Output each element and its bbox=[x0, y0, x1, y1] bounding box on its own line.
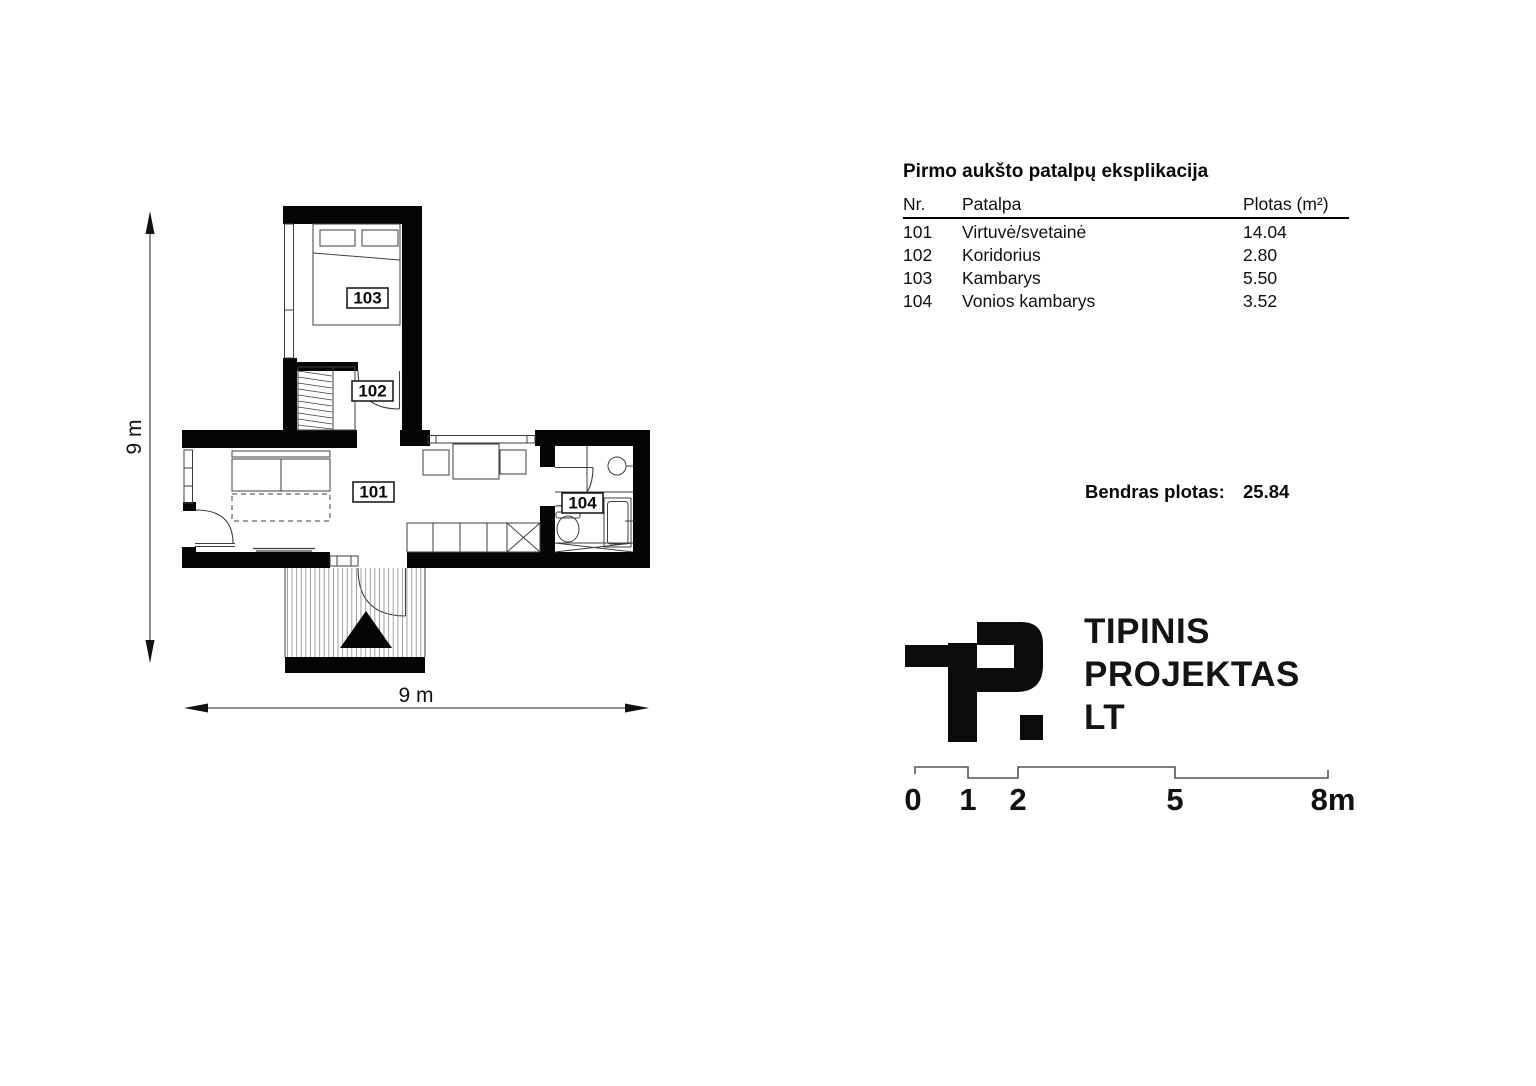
window-entrance bbox=[330, 556, 358, 566]
scale-label-8m: 8m bbox=[1311, 782, 1356, 817]
row-area: 3.52 bbox=[1243, 290, 1349, 313]
logo-wordmark: TIPINIS PROJEKTAS LT bbox=[1084, 610, 1300, 739]
dimension-vertical: 9 m bbox=[123, 211, 155, 663]
row-room: Kambarys bbox=[962, 267, 1243, 290]
total-area-label: Bendras plotas: bbox=[1085, 481, 1243, 503]
scale-label-5: 5 bbox=[1166, 782, 1183, 817]
logo-line-2: PROJEKTAS bbox=[1084, 653, 1300, 696]
window-living-left bbox=[184, 450, 193, 503]
room-label-102: 102 bbox=[352, 381, 393, 401]
sofa bbox=[232, 451, 330, 521]
col-header-nr: Nr. bbox=[903, 195, 962, 219]
terrace bbox=[285, 568, 425, 657]
room-label-101: 101 bbox=[353, 482, 394, 502]
row-nr: 104 bbox=[903, 290, 962, 313]
window-room-103 bbox=[285, 224, 294, 358]
wardrobe bbox=[298, 367, 355, 430]
row-area: 5.50 bbox=[1243, 267, 1349, 290]
total-area-value: 25.84 bbox=[1243, 481, 1289, 502]
door-living-left bbox=[195, 510, 235, 547]
row-nr: 102 bbox=[903, 244, 962, 267]
logo-line-3: LT bbox=[1084, 696, 1300, 739]
explication-title: Pirmo aukšto patalpų eksplikacija bbox=[903, 162, 1349, 182]
scale-label-1: 1 bbox=[959, 782, 976, 817]
dining-set bbox=[423, 444, 526, 479]
svg-text:101: 101 bbox=[359, 483, 387, 502]
scale-label-2: 2 bbox=[1009, 782, 1026, 817]
floor-plan: 103 102 101 104 9 m bbox=[120, 190, 700, 735]
svg-text:9 m: 9 m bbox=[398, 684, 433, 707]
scale-label-0: 0 bbox=[904, 782, 921, 817]
bathtub bbox=[604, 498, 631, 547]
row-room: Virtuvė/svetainė bbox=[962, 221, 1243, 244]
total-area: Bendras plotas:25.84 bbox=[1085, 481, 1289, 503]
col-header-room: Patalpa bbox=[962, 195, 1243, 219]
kitchen-counter bbox=[407, 523, 540, 552]
toilet bbox=[557, 516, 579, 542]
row-area: 14.04 bbox=[1243, 221, 1349, 244]
svg-text:103: 103 bbox=[353, 289, 381, 308]
bed bbox=[313, 224, 400, 325]
row-nr: 101 bbox=[903, 221, 962, 244]
explication-table: Pirmo aukšto patalpų eksplikacija Nr. Pa… bbox=[903, 162, 1349, 313]
row-room: Koridorius bbox=[962, 244, 1243, 267]
drawing-sheet: 103 102 101 104 9 m bbox=[0, 0, 1536, 1086]
room-label-104: 104 bbox=[562, 493, 603, 513]
col-header-area: Plotas (m²) bbox=[1243, 195, 1349, 219]
svg-text:104: 104 bbox=[568, 494, 597, 513]
dimension-horizontal: 9 m bbox=[184, 684, 649, 713]
row-room: Vonios kambarys bbox=[962, 290, 1243, 313]
row-area: 2.80 bbox=[1243, 244, 1349, 267]
tv-bench bbox=[253, 549, 315, 552]
washbasin bbox=[608, 457, 626, 475]
svg-text:102: 102 bbox=[358, 382, 386, 401]
window-kitchen-top bbox=[428, 436, 535, 444]
room-label-103: 103 bbox=[347, 288, 388, 308]
svg-text:9 m: 9 m bbox=[123, 419, 146, 454]
logo-line-1: TIPINIS bbox=[1084, 610, 1300, 653]
row-nr: 103 bbox=[903, 267, 962, 290]
